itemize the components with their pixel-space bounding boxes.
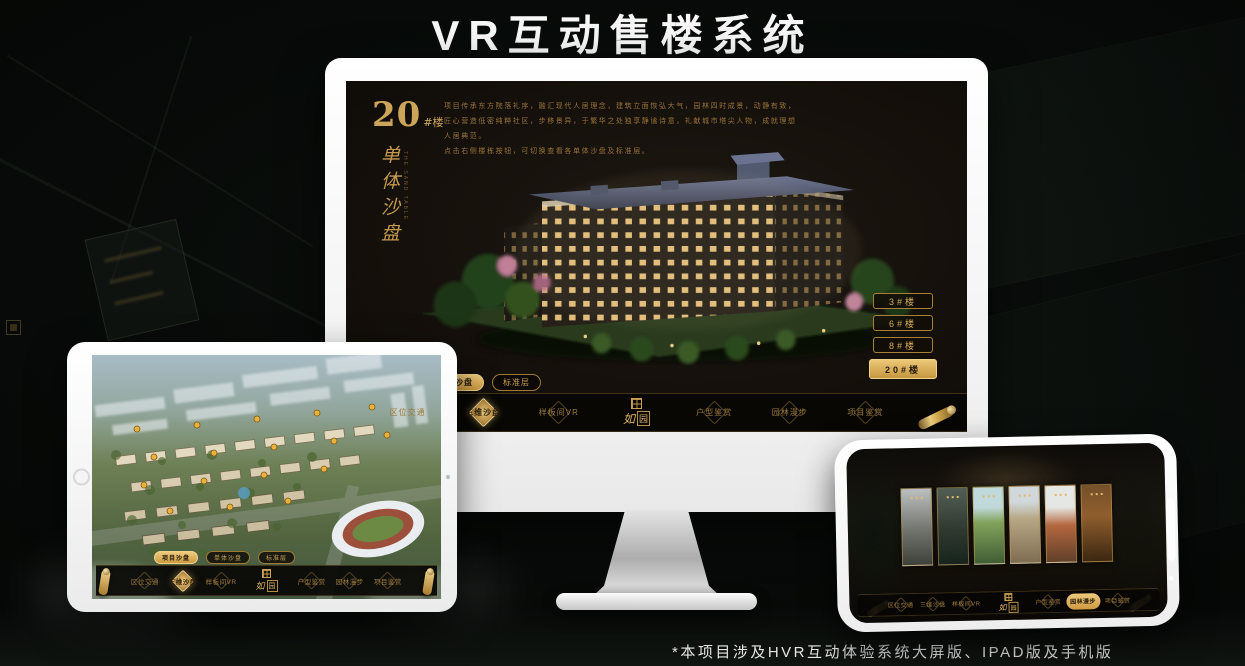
logo-boxed-char: 园 xyxy=(637,411,650,426)
nav-item-location[interactable]: 区位交通 xyxy=(887,596,913,613)
floor-button-group: 3#楼 6#楼 8#楼 20#楼 xyxy=(869,293,937,379)
bg-plaque xyxy=(85,219,200,341)
monitor-base xyxy=(556,593,757,610)
nav-item-label: 园林漫步 xyxy=(336,576,364,586)
nav-item-label: 户型鉴赏 xyxy=(1035,597,1061,607)
nav-item-label: 园林漫步 xyxy=(1070,596,1096,606)
phone-camera-icon xyxy=(1169,576,1174,581)
tablet-navbar: 区位交通 三维沙盘 样板间VR 如 园 xyxy=(96,565,437,596)
ruyuan-logo: 如 园 xyxy=(615,398,659,427)
logo-script-char: 如 xyxy=(255,579,264,592)
floor-button-20[interactable]: 20#楼 xyxy=(869,359,937,379)
phone-notch xyxy=(1166,498,1175,560)
section-title-vertical: 单体沙盘 xyxy=(376,145,403,249)
nav-group-right: 户型鉴赏 园林漫步 项目鉴赏 xyxy=(1030,592,1135,610)
logo-boxed-char: 园 xyxy=(1008,601,1018,612)
subtab-single-sandtable[interactable]: 单体沙盘 xyxy=(206,551,250,564)
nav-item-label: 三维沙盘 xyxy=(169,576,197,586)
nav-item-label: 项目鉴赏 xyxy=(847,407,883,418)
footnote: *本项目涉及HVR互动体验系统大屏版、IPAD版及手机版 xyxy=(672,641,1113,662)
subtab-standard-floor[interactable]: 标准层 xyxy=(258,551,295,564)
tablet-home-button[interactable] xyxy=(73,469,90,486)
nav-group-left: 区位交通 三维沙盘 样板间VR xyxy=(881,595,986,613)
nav-item-label: 样板间VR xyxy=(539,407,579,418)
logo-text: 如 园 xyxy=(998,601,1018,612)
nav-item-project-gallery[interactable]: 项目鉴赏 xyxy=(1105,592,1131,609)
scroll-icon[interactable] xyxy=(917,405,956,431)
phone-device: 区位交通 三维沙盘 样板间VR 如 园 xyxy=(834,433,1180,632)
nav-item-3d-sandtable[interactable]: 三维沙盘 xyxy=(920,596,946,613)
floor-button-3[interactable]: 3#楼 xyxy=(873,293,933,309)
nav-item-label: 区位交通 xyxy=(888,600,914,610)
nav-item-garden-walk[interactable]: 园林漫步 xyxy=(1066,593,1100,610)
nav-item-label: 项目鉴赏 xyxy=(374,576,402,586)
nav-item-label: 区位交通 xyxy=(131,576,159,586)
nav-group-right: 户型鉴赏 园林漫步 项目鉴赏 xyxy=(289,571,412,591)
nav-item-showroom-vr[interactable]: 样板间VR xyxy=(539,400,579,426)
tablet-camera-icon xyxy=(446,475,450,479)
nav-item-project-gallery[interactable]: 项目鉴赏 xyxy=(373,571,403,591)
ruyuan-logo: 如 园 xyxy=(986,592,1030,613)
logo-script-char: 如 xyxy=(998,602,1006,613)
nav-item-project-gallery[interactable]: 项目鉴赏 xyxy=(845,400,885,426)
nav-item-showroom-vr[interactable]: 样板间VR xyxy=(952,595,981,612)
nav-item-label: 三维沙盘 xyxy=(465,407,501,418)
logo-script-char: 如 xyxy=(623,410,635,427)
seal-icon xyxy=(262,569,271,578)
description-line: 项目传承东方院落礼序，融汇现代人居理念，建筑立面恢弘大气，园林四时成景，动静有致… xyxy=(444,99,864,114)
bg-map-road xyxy=(7,55,313,247)
nav-item-label: 园林漫步 xyxy=(772,407,808,418)
nav-item-unit-plans[interactable]: 户型鉴赏 xyxy=(297,571,327,591)
nav-item-garden-walk[interactable]: 园林漫步 xyxy=(335,571,365,591)
logo-boxed-char: 园 xyxy=(267,580,278,592)
seal-icon xyxy=(1004,592,1012,600)
logo-text: 如 园 xyxy=(255,579,277,592)
tablet-screen: 项目沙盘 单体沙盘 标准层 区位交通 三维沙盘 样板间VR xyxy=(92,355,441,599)
nav-item-3d-sandtable[interactable]: 三维沙盘 xyxy=(168,571,198,591)
nav-item-unit-plans[interactable]: 户型鉴赏 xyxy=(1035,593,1061,610)
subtab-standard-floor[interactable]: 标准层 xyxy=(492,374,541,391)
scene-card-5[interactable] xyxy=(1045,485,1078,564)
scene-card-3[interactable] xyxy=(973,486,1006,565)
ruyuan-logo: 如 园 xyxy=(245,569,289,592)
phone-navbar: 区位交通 三维沙盘 样板间VR 如 园 xyxy=(857,588,1159,617)
scene-gallery xyxy=(901,484,1114,566)
floor-button-8[interactable]: 8#楼 xyxy=(873,337,933,353)
nav-item-showroom-vr[interactable]: 样板间VR xyxy=(206,571,237,591)
scene-card-1[interactable] xyxy=(901,488,934,567)
nav-item-label: 项目鉴赏 xyxy=(1105,595,1131,605)
page-title: VR互动售楼系统 xyxy=(0,2,1245,63)
nav-item-label: 三维沙盘 xyxy=(920,599,946,609)
seal-icon xyxy=(631,398,642,409)
nav-item-label: 户型鉴赏 xyxy=(298,576,326,586)
scene-card-2[interactable] xyxy=(937,487,970,566)
tablet-subtab-group: 项目沙盘 单体沙盘 标准层 xyxy=(154,551,295,564)
bg-watermark-icon xyxy=(6,320,21,335)
nav-item-label: 户型鉴赏 xyxy=(696,407,732,418)
nav-item-unit-plans[interactable]: 户型鉴赏 xyxy=(694,400,734,426)
nav-item-label: 样板间VR xyxy=(952,599,981,609)
nav-item-label: 样板间VR xyxy=(206,576,237,586)
scene-card-6[interactable] xyxy=(1080,484,1113,563)
scene-card-4[interactable] xyxy=(1009,485,1042,564)
nav-item-garden-walk[interactable]: 园林漫步 xyxy=(770,400,810,426)
nav-group-left: 区位交通 三维沙盘 样板间VR xyxy=(122,571,245,591)
monitor-stand xyxy=(591,510,722,598)
floor-button-6[interactable]: 6#楼 xyxy=(873,315,933,331)
nav-group-right: 户型鉴赏 园林漫步 项目鉴赏 xyxy=(659,400,922,426)
building-3d-model[interactable] xyxy=(412,119,932,365)
nav-item-location[interactable]: 区位交通 xyxy=(130,571,160,591)
poster-stage: VR互动售楼系统 *本项目涉及HVR互动体验系统大屏版、IPAD版及手机版 20… xyxy=(0,0,1245,666)
nav-item-3d-sandtable[interactable]: 三维沙盘 xyxy=(463,400,503,426)
logo-text: 如 园 xyxy=(623,410,650,427)
section-title-english: THE SAND TABLE xyxy=(402,151,408,221)
nav-item-label: 区位交通 xyxy=(390,407,426,418)
subtab-project-sandtable[interactable]: 项目沙盘 xyxy=(154,551,198,564)
phone-screen: 区位交通 三维沙盘 样板间VR 如 园 xyxy=(846,443,1168,624)
tablet-device: 项目沙盘 单体沙盘 标准层 区位交通 三维沙盘 样板间VR xyxy=(67,342,457,612)
